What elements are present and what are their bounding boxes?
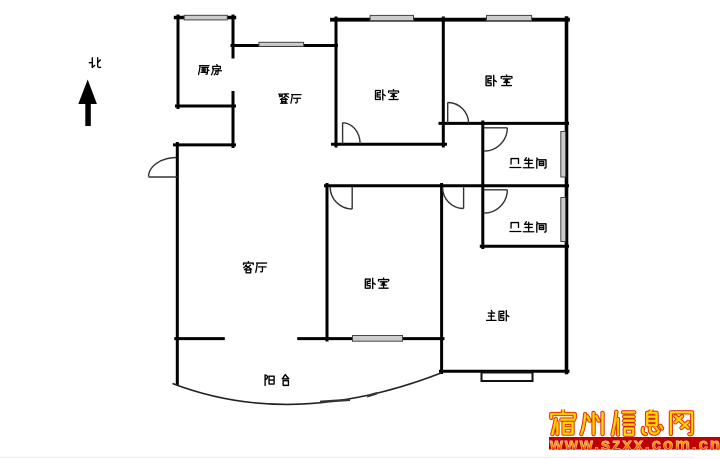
svg-text:www.szxx.com.cn: www.szxx.com.cn [549, 436, 720, 454]
